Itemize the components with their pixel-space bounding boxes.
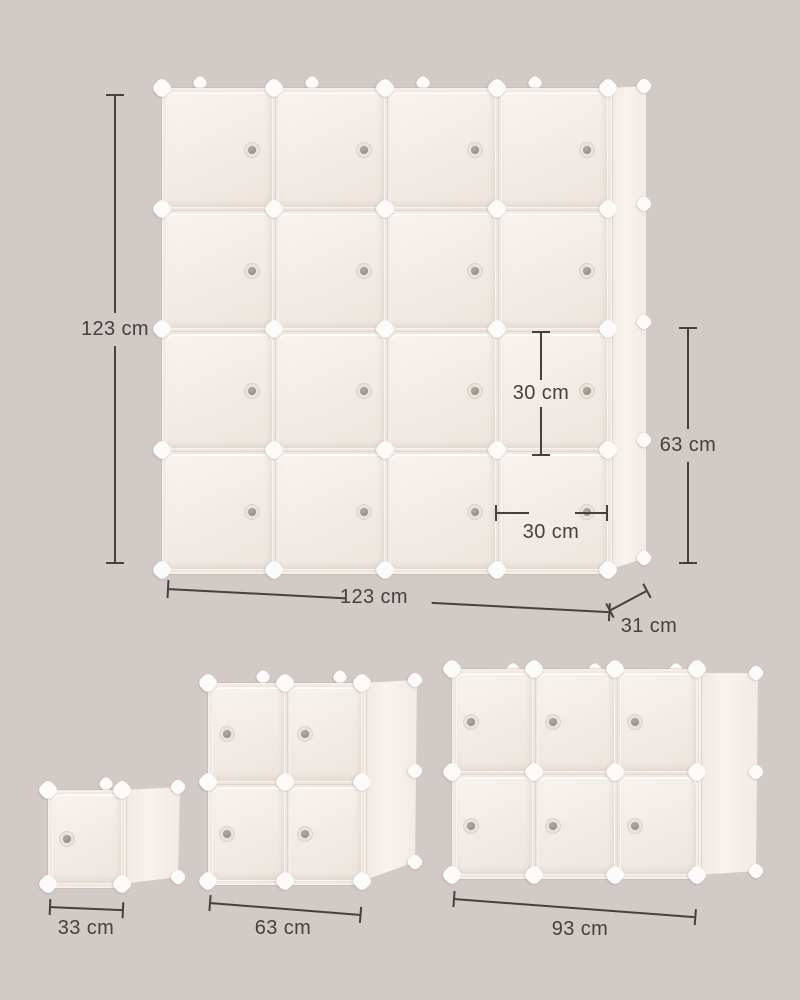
cube-door — [391, 214, 496, 328]
dimension-label: 31 cm — [618, 615, 680, 637]
cube-cell — [388, 332, 499, 452]
dimension-line — [51, 906, 122, 911]
door-knob-icon — [631, 822, 639, 830]
cube-door — [391, 455, 496, 569]
dimension-line — [432, 602, 609, 613]
dimension-label: 63 cm — [220, 917, 346, 939]
door-knob-icon — [467, 718, 475, 726]
door-knob-icon — [248, 387, 256, 395]
cube-cell — [288, 785, 365, 884]
cube-door — [167, 93, 272, 207]
door-knob-icon — [471, 387, 479, 395]
door-knob-icon — [248, 508, 256, 516]
door-knob-icon — [223, 830, 231, 838]
cube-cell — [276, 90, 387, 210]
cube-cell — [276, 452, 387, 572]
cube-door — [167, 455, 272, 569]
cube-door — [621, 778, 696, 875]
cube-cell — [536, 775, 617, 878]
door-knob-icon — [467, 822, 475, 830]
door-knob-icon — [301, 730, 309, 738]
door-knob-icon — [631, 718, 639, 726]
cube-cell — [454, 671, 535, 774]
cube-door — [279, 214, 384, 328]
door-knob-icon — [360, 387, 368, 395]
door-knob-icon — [471, 508, 479, 516]
unit-front-panel — [48, 790, 126, 888]
cube-cell — [499, 90, 610, 210]
cube-door — [621, 674, 696, 771]
dimension-line — [455, 898, 694, 918]
cube-cell — [210, 785, 287, 884]
cube-cell — [499, 211, 610, 331]
dimension-label: 30 cm — [513, 382, 569, 405]
dimension-cap — [606, 505, 608, 521]
door-knob-icon — [223, 730, 231, 738]
dimension-line — [687, 329, 689, 429]
cube-cell — [164, 452, 275, 572]
cube-cell — [50, 792, 124, 886]
cube-door — [391, 93, 496, 207]
cube-door — [291, 688, 362, 781]
product-dimension-diagram: { "title": "Cube storage organizer dimen… — [0, 0, 800, 1000]
dimension-label: 30 cm — [506, 521, 596, 543]
dimension-cube-inner-width — [495, 505, 608, 521]
cube-door — [457, 674, 532, 771]
door-knob-icon — [471, 146, 479, 154]
cube-door — [167, 335, 272, 449]
door-knob-icon — [63, 835, 71, 843]
cube-door — [502, 214, 607, 328]
dimension-total-height: 123 cm — [84, 94, 146, 564]
cube-door — [502, 93, 607, 207]
cube-cell — [288, 685, 365, 784]
dimension-line — [169, 588, 346, 599]
cube-cell — [454, 775, 535, 878]
cube-door — [213, 788, 284, 881]
cube-cell — [618, 671, 699, 774]
dimension-label: 123 cm — [81, 318, 149, 341]
cube-cell — [164, 90, 275, 210]
door-knob-icon — [471, 267, 479, 275]
cube-door — [291, 788, 362, 881]
dimension-cap — [359, 907, 362, 923]
cube-door — [213, 688, 284, 781]
unit-side-panel — [122, 787, 180, 884]
dimension-line — [114, 96, 116, 313]
dimension-line — [497, 512, 529, 514]
door-knob-icon — [583, 267, 591, 275]
dimension-gap — [529, 512, 575, 514]
dimension-label: 33 cm — [50, 917, 122, 939]
cube-door — [279, 455, 384, 569]
cube-door — [53, 795, 121, 883]
dimension-cap — [679, 562, 697, 564]
storage-unit-1x1 — [48, 790, 126, 888]
storage-unit-3x2 — [452, 669, 701, 879]
door-knob-icon — [583, 387, 591, 395]
cube-cell — [164, 332, 275, 452]
door-knob-icon — [360, 267, 368, 275]
dimension-line — [114, 346, 116, 563]
dimension-line — [211, 902, 360, 916]
dimension-line — [575, 512, 607, 514]
door-knob-icon — [549, 822, 557, 830]
cube-cell — [276, 211, 387, 331]
cube-door — [539, 674, 614, 771]
door-knob-icon — [248, 267, 256, 275]
dimension-line — [540, 407, 542, 454]
door-knob-icon — [583, 146, 591, 154]
dimension-label: 123 cm — [338, 586, 410, 608]
cube-door — [539, 778, 614, 875]
dimension-cap — [122, 902, 125, 918]
cube-door — [279, 335, 384, 449]
cube-door — [457, 778, 532, 875]
cube-cell — [388, 211, 499, 331]
cube-door — [167, 214, 272, 328]
cube-door — [391, 335, 496, 449]
dimension-line — [610, 590, 646, 611]
door-knob-icon — [360, 508, 368, 516]
dimension-label: 93 cm — [459, 918, 701, 940]
dimension-two-cube-height: 63 cm — [657, 327, 719, 564]
door-knob-icon — [301, 830, 309, 838]
dimension-line — [687, 462, 689, 562]
door-knob-icon — [549, 718, 557, 726]
diagram-stage: 123 cm 63 cm 30 cm 30 cm 123 cm — [0, 0, 800, 1000]
cube-cell — [210, 685, 287, 784]
cube-cell — [388, 452, 499, 572]
cube-cell — [276, 332, 387, 452]
door-knob-icon — [360, 146, 368, 154]
cube-cell — [536, 671, 617, 774]
cube-cell — [618, 775, 699, 878]
dimension-cap — [106, 562, 124, 564]
cube-cell — [388, 90, 499, 210]
door-knob-icon — [248, 146, 256, 154]
unit-front-panel — [452, 669, 701, 879]
dimension-line — [540, 333, 542, 380]
dimension-depth — [605, 583, 651, 618]
dimension-label: 63 cm — [660, 434, 716, 457]
cube-door — [279, 93, 384, 207]
cube-cell — [164, 211, 275, 331]
storage-unit-2x2 — [208, 683, 366, 885]
dimension-single-width — [49, 899, 125, 918]
dimension-cap — [532, 454, 550, 456]
dimension-cube-inner-height: 30 cm — [512, 331, 570, 456]
